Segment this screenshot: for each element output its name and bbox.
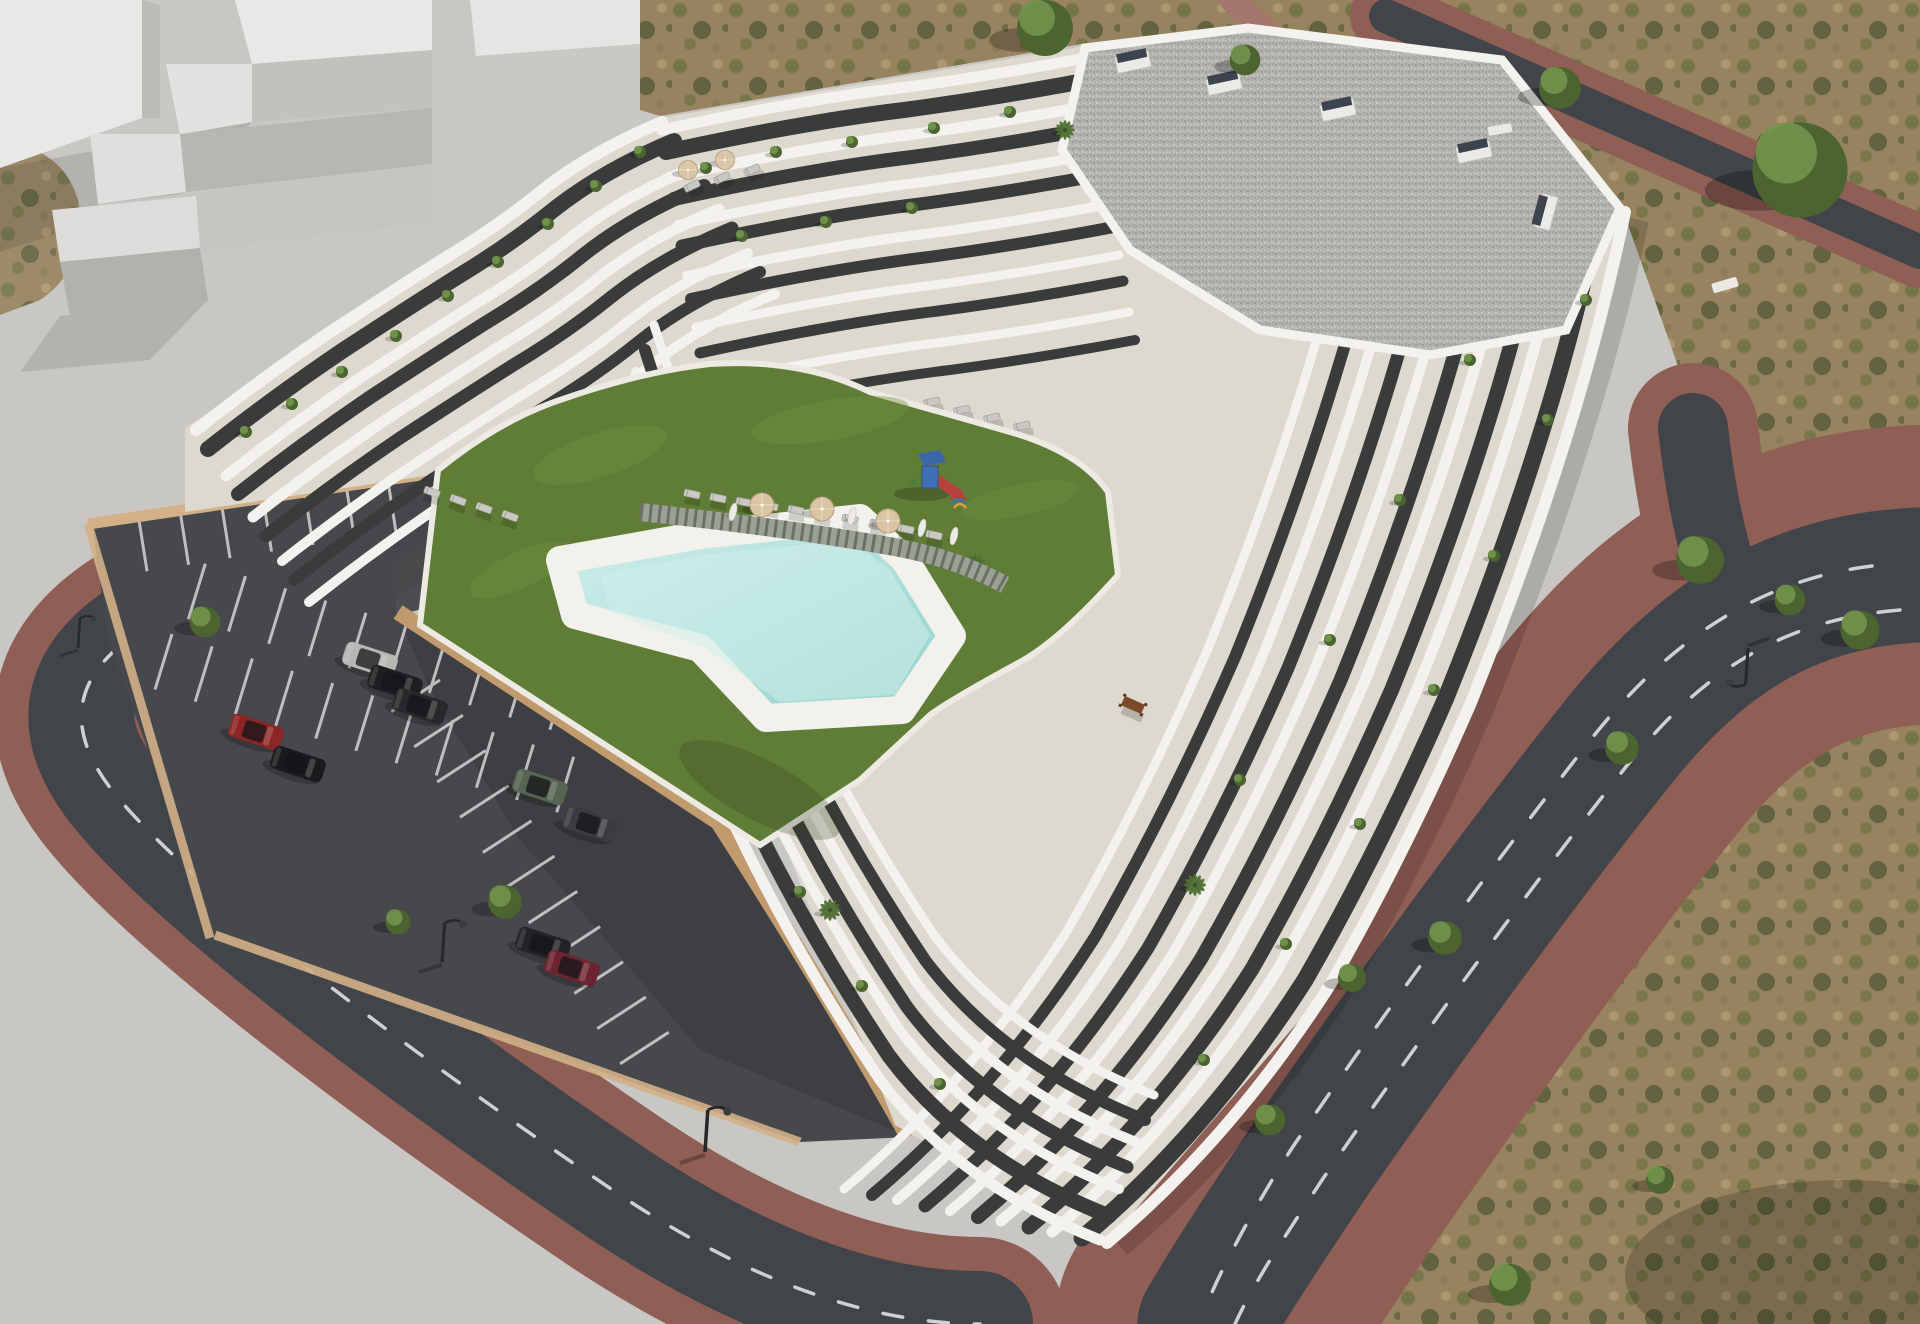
massing-step-top: [166, 64, 252, 134]
massing-slab-side: [142, 0, 160, 118]
architectural-rendering: [0, 0, 1920, 1324]
massing-step-top: [90, 134, 186, 204]
render-canvas: [0, 0, 1920, 1324]
play-post: [911, 479, 917, 485]
play-tower: [922, 466, 938, 488]
